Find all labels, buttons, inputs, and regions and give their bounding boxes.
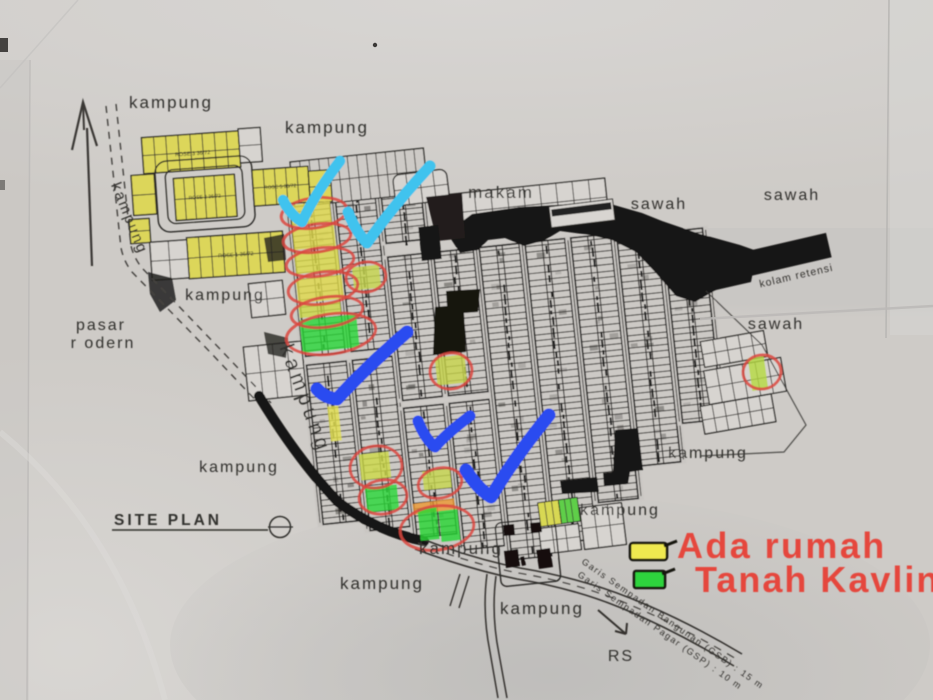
svg-text:kampung: kampung [419,539,503,558]
svg-text:kampung: kampung [580,502,660,519]
svg-text:sawah: sawah [764,187,820,204]
svg-text:sawah: sawah [748,316,804,333]
svg-text:kampung: kampung [500,599,584,618]
svg-text:makam: makam [468,183,534,202]
svg-text:r odern: r odern [71,335,136,352]
svg-text:sawah: sawah [631,196,687,213]
svg-text:kampung: kampung [285,118,369,137]
svg-text:Tanah Kavling: Tanah Kavling [695,559,933,600]
svg-text:RS: RS [608,648,634,665]
svg-text:kampung: kampung [185,287,265,304]
svg-text:pasar: pasar [76,317,126,334]
svg-text:kampung: kampung [668,445,748,462]
svg-text:kampung: kampung [199,459,279,476]
svg-text:kampung: kampung [340,574,424,593]
svg-text:SITE PLAN: SITE PLAN [114,512,222,529]
svg-text:kampung: kampung [129,93,213,112]
